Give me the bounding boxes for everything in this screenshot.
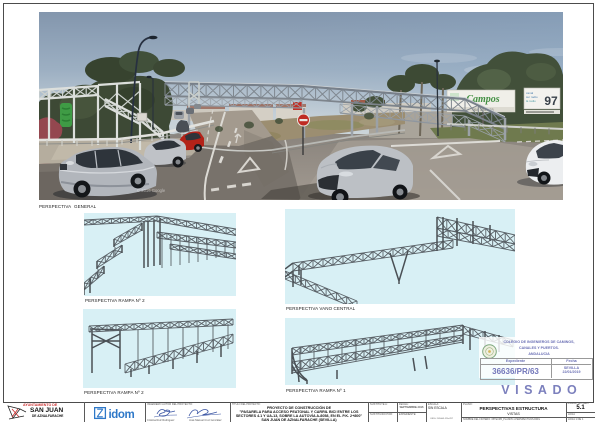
svg-text:la radio: la radio <box>526 99 536 103</box>
svg-text:idom: idom <box>109 409 135 420</box>
svg-text:© 2016 Google: © 2016 Google <box>137 188 166 193</box>
svg-text:97: 97 <box>544 94 558 108</box>
svg-text:Campos: Campos <box>466 94 499 105</box>
